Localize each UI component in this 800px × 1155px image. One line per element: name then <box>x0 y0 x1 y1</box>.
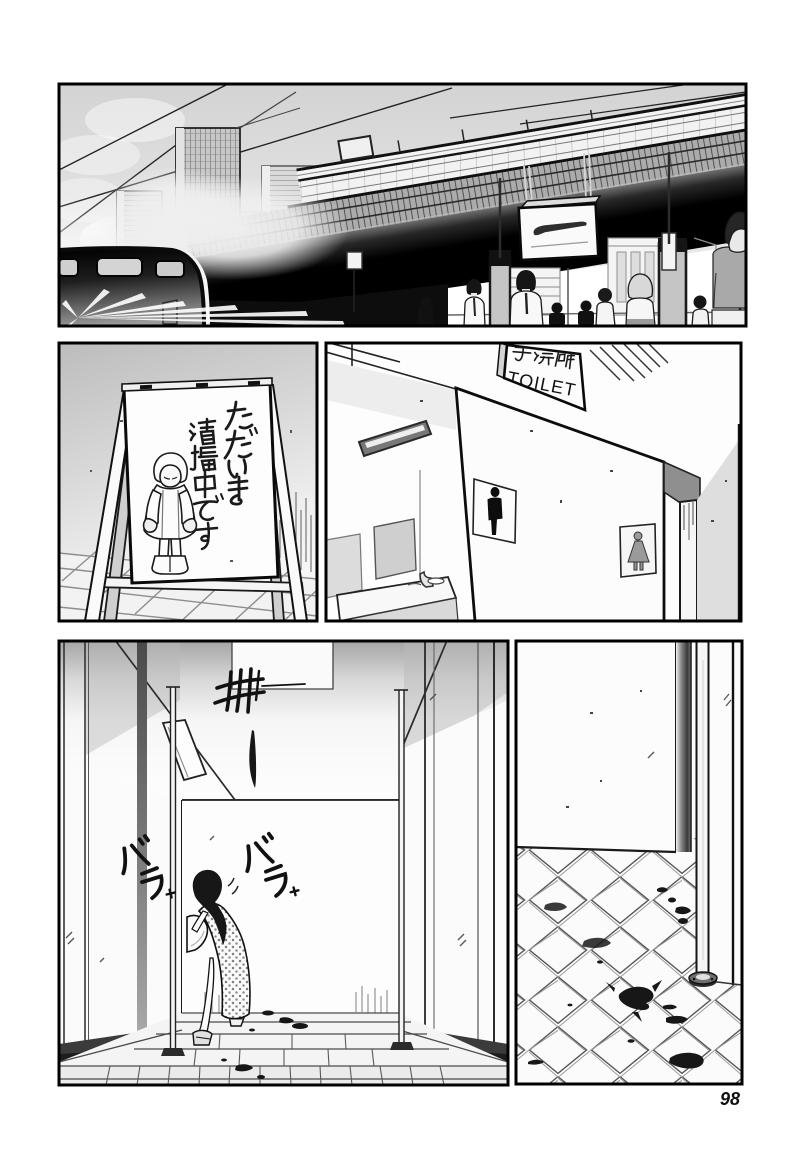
svg-text:98: 98 <box>720 1089 740 1109</box>
